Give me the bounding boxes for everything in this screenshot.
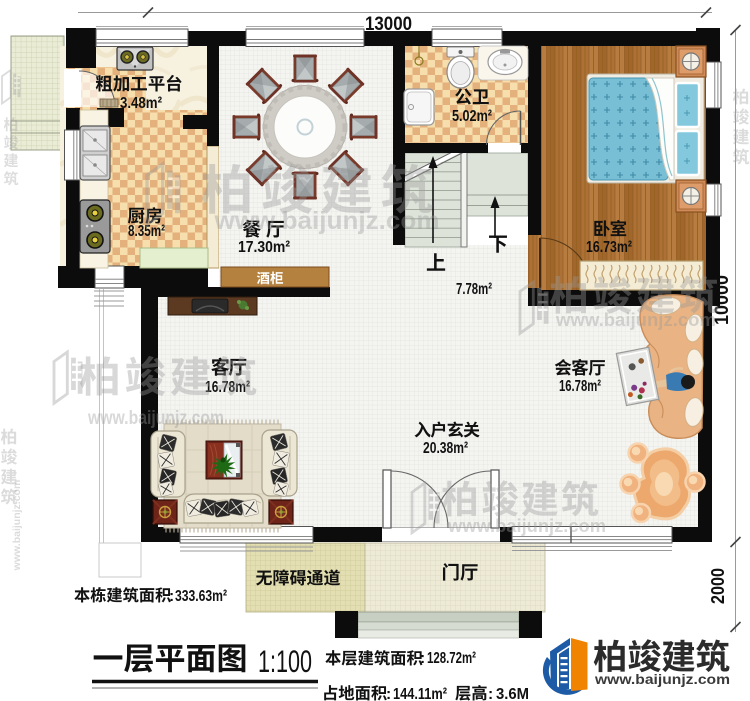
svg-text:5.02m²: 5.02m² [452,108,492,125]
svg-text::: : [169,588,174,605]
svg-text:3.6M: 3.6M [496,686,529,701]
svg-text:www.baijunjz.com: www.baijunjz.com [11,480,23,572]
svg-text:www.baijunjz.com: www.baijunjz.com [447,516,606,536]
svg-text::: : [420,650,425,667]
svg-text:2000: 2000 [708,568,728,604]
svg-text:www.baijunjz.com: www.baijunjz.com [213,207,439,235]
svg-text:333.63m²: 333.63m² [175,588,227,605]
svg-text:16.78m²: 16.78m² [559,378,601,395]
svg-text:www.baijunjz.com: www.baijunjz.com [555,310,716,330]
svg-text::: : [386,686,391,701]
svg-text:17.30m²: 17.30m² [238,239,290,256]
svg-text:16.73m²: 16.73m² [586,239,632,256]
svg-text:www.baijunjz.com: www.baijunjz.com [87,408,224,429]
svg-text:128.72m²: 128.72m² [427,650,476,667]
svg-text:www.baijunjz.com: www.baijunjz.com [594,672,730,687]
svg-text:1:100: 1:100 [258,643,312,679]
svg-text:3.48m²: 3.48m² [120,95,162,112]
svg-text:7.78m²: 7.78m² [456,281,492,298]
svg-text:20.38m²: 20.38m² [423,440,468,457]
svg-text:144.11m²: 144.11m² [393,686,447,701]
svg-text::: : [488,686,493,701]
